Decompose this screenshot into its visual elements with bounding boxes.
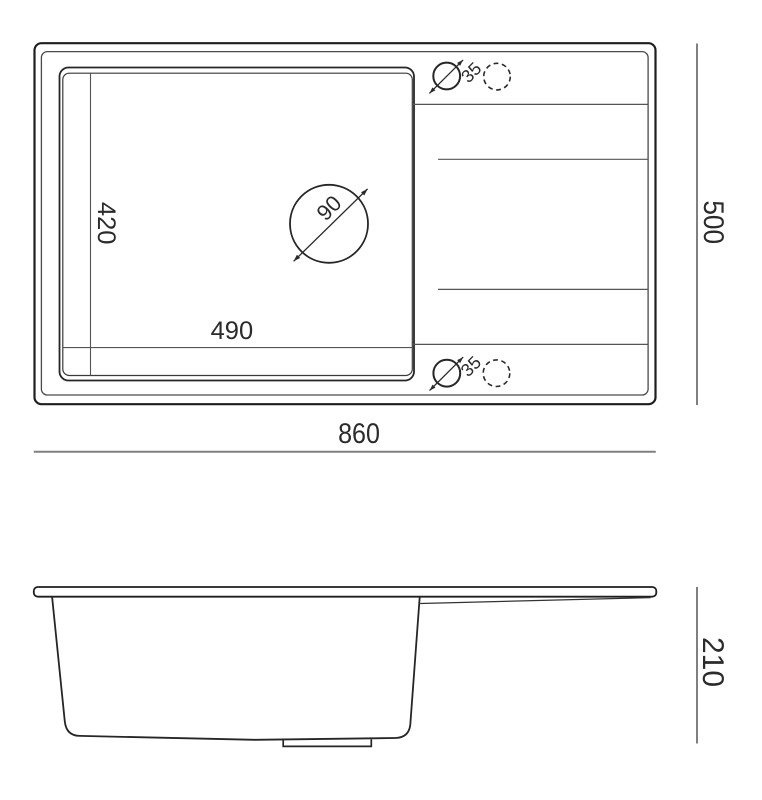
svg-text:860: 860 xyxy=(338,418,380,450)
svg-text:500: 500 xyxy=(697,200,729,244)
svg-text:210: 210 xyxy=(696,637,729,687)
svg-text:35: 35 xyxy=(457,352,485,380)
svg-text:490: 490 xyxy=(211,317,254,345)
svg-text:420: 420 xyxy=(92,202,120,245)
svg-text:90: 90 xyxy=(312,191,347,226)
